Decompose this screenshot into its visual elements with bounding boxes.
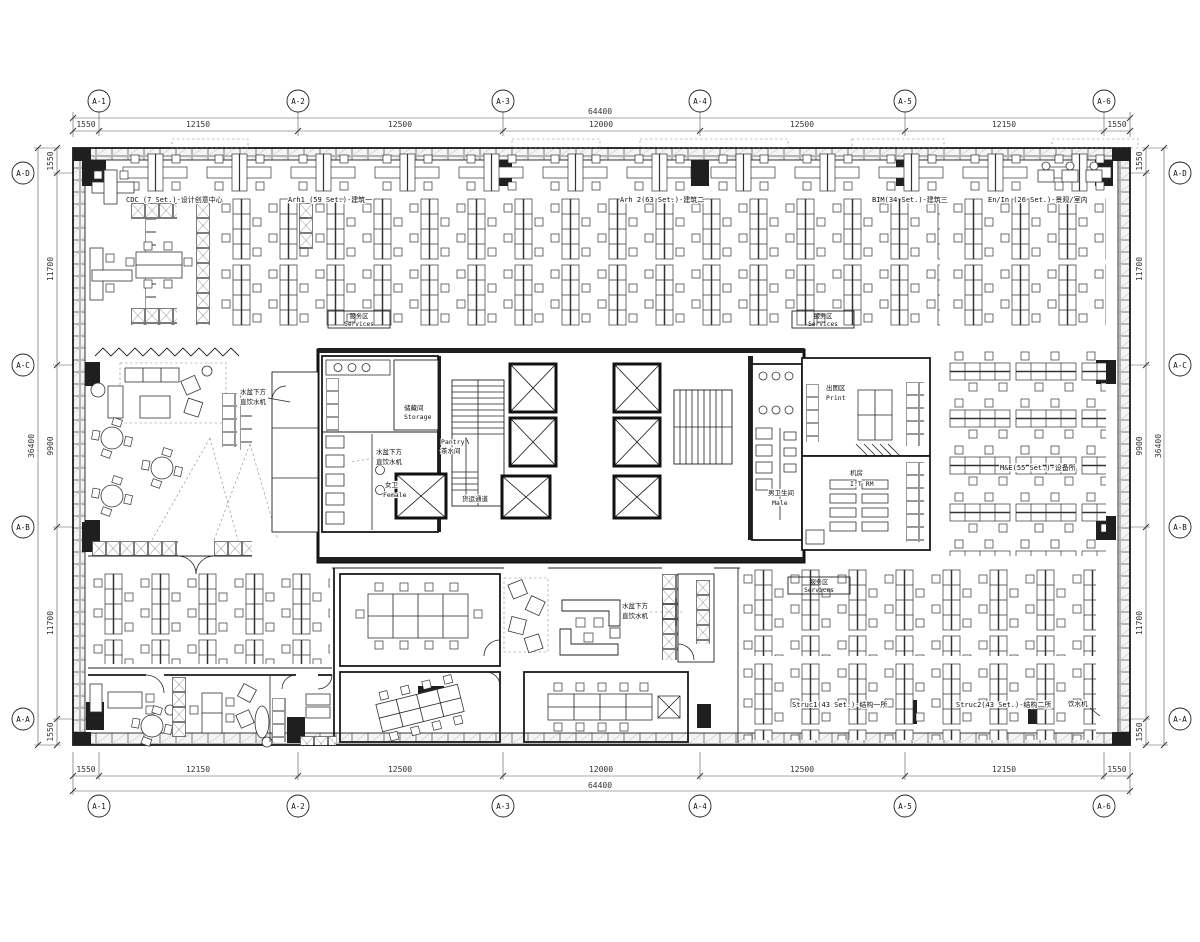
desk-field-top-band (118, 152, 1114, 194)
grid-bubble-a5: A-5 (898, 97, 912, 106)
dim-right-4: 1550 (1135, 722, 1144, 741)
dim-bot-5: 12150 (992, 765, 1016, 774)
note-water-3-l1: 水盆下方 (622, 601, 649, 610)
small-room-east (678, 574, 714, 662)
dim-top-1: 12150 (186, 120, 210, 129)
label-female-en: Female (383, 491, 407, 499)
grid-bubble-a6-b: A-6 (1097, 802, 1111, 811)
floor-plan-drawing: 64400 1550 12150 12500 12000 12500 12150… (0, 0, 1200, 942)
dim-top-5: 12150 (992, 120, 1016, 129)
grid-bubble-a3-b: A-3 (496, 802, 510, 811)
grid-bubble-a2-b: A-2 (291, 802, 305, 811)
stair-2 (674, 390, 732, 464)
grid-bubble-ad: A-D (16, 169, 30, 178)
zone-label-arh1: Arh1 (59 Set.)-建筑一 (288, 195, 372, 204)
services-3-en: Services (804, 587, 834, 594)
label-print-cn: 出图区 (826, 383, 846, 392)
label-female-cn: 女卫 (385, 480, 399, 489)
dim-top-6: 1550 (1107, 120, 1126, 129)
dim-right-1: 11700 (1135, 257, 1144, 281)
zone-label-enin: En/In (26 Set.)-景观/室内 (988, 195, 1088, 204)
zone-label-cdc: CDC (7 Set.)-设计创意中心 (126, 195, 223, 204)
grid-bubble-a4-b: A-4 (693, 802, 707, 811)
services-1-cn: 服务区 (350, 313, 369, 321)
enin-corner-seating (1038, 162, 1102, 182)
label-freight: 货运通道 (462, 494, 489, 503)
grid-bubble-ad-r: A-D (1173, 169, 1187, 178)
it-room (802, 444, 930, 550)
desk-field-arh (218, 197, 940, 329)
bottom-dimension-strip: 1550 12150 12500 12000 12500 12150 1550 … (70, 752, 1133, 817)
dim-right-0: 1550 (1135, 151, 1144, 170)
grid-bubble-a2: A-2 (291, 97, 305, 106)
meeting-room-a (340, 574, 500, 666)
services-3-cn: 服务区 (810, 579, 829, 587)
meeting-room-b (340, 672, 500, 742)
dim-bot-6: 1550 (1107, 765, 1126, 774)
dim-top-0: 1550 (76, 120, 95, 129)
dim-left-4: 1550 (46, 722, 55, 741)
dim-top-3: 12000 (589, 120, 613, 129)
grid-bubble-a6: A-6 (1097, 97, 1111, 106)
grid-bubble-a5-b: A-5 (898, 802, 912, 811)
label-it-cn: 机房 (850, 468, 863, 477)
dim-row-total-left: 36400 (27, 434, 36, 458)
grid-bubbles-bottom: A-1 A-2 A-3 A-4 A-5 A-6 (88, 795, 1115, 817)
dim-right-3: 11700 (1135, 611, 1144, 635)
dim-right-2: 9900 (1135, 436, 1144, 455)
desk-field-struc-upper (740, 568, 1096, 656)
dim-bot-2: 12500 (388, 765, 412, 774)
zone-label-me: M&E(55 Set.)-设备所 (1000, 463, 1076, 472)
grid-bubble-aa-r: A-A (1173, 715, 1187, 724)
grid-bubble-ac-r: A-C (1173, 361, 1187, 370)
central-core (272, 348, 930, 562)
services-1-en: Services (344, 321, 374, 328)
dim-left-0: 1550 (46, 151, 55, 170)
services-2-cn: 服务区 (814, 313, 833, 321)
dim-col-total-bottom: 64400 (588, 781, 612, 790)
floor-plan-page: 64400 1550 12150 12500 12000 12500 12150… (0, 0, 1200, 942)
reception-counters (560, 600, 620, 655)
label-print-en: Print (826, 394, 846, 402)
dim-bot-3: 12000 (589, 765, 613, 774)
grid-bubble-ab: A-B (16, 523, 30, 532)
meeting-room-c (524, 672, 688, 742)
label-male-en: Male (772, 499, 788, 507)
grid-bubble-a4: A-4 (693, 97, 707, 106)
label-storage-cn: 储藏间 (404, 403, 424, 412)
canopy-dashed (172, 139, 1138, 148)
note-water-2-l2: 直饮水机 (376, 457, 403, 466)
note-water-2-l1: 水盆下方 (376, 447, 403, 456)
zone-label-struc2: Struc2(43 Set.)-结构二所 (956, 700, 1051, 709)
note-water-dispenser: 饮水机 (1068, 699, 1088, 708)
label-pantry-cn: 茶水间 (441, 446, 461, 455)
dim-col-total-top: 64400 (588, 107, 612, 116)
dim-top-2: 12500 (388, 120, 412, 129)
dim-left-3: 11700 (46, 611, 55, 635)
dim-bot-0: 1550 (76, 765, 95, 774)
top-dimension-strip: 64400 1550 12150 12500 12000 12500 12150… (70, 90, 1133, 137)
dim-bot-4: 12500 (790, 765, 814, 774)
informal-seating (504, 578, 548, 653)
desk-field-me (948, 348, 1106, 556)
label-it-en: I.T RM (850, 480, 874, 488)
grid-bubble-ac: A-C (16, 361, 30, 370)
grid-bubble-a1: A-1 (92, 97, 106, 106)
zone-label-struc1: Struc1(43 Set.)-结构一所 (792, 700, 887, 709)
grid-bubble-ab-r: A-B (1173, 523, 1187, 532)
print-room (802, 358, 930, 456)
dim-left-1: 11700 (46, 257, 55, 281)
bottom-center-rooms (332, 568, 740, 743)
male-wc (752, 364, 802, 540)
grid-bubble-a1-b: A-1 (92, 802, 106, 811)
dim-left-2: 9900 (46, 436, 55, 455)
zone-label-bim3: BIM(34 Set.)-建筑三 (872, 195, 948, 204)
note-water-1-l2: 直饮水机 (240, 397, 267, 406)
note-water-1-l1: 水盆下方 (240, 387, 267, 396)
label-male-cn: 男卫生间 (768, 488, 794, 497)
label-storage-en: Storage (404, 413, 431, 421)
label-pantry-en: Pantry (441, 438, 465, 446)
zone-label-arh2: Arh 2(63 Set.)-建筑二 (620, 195, 704, 204)
note-water-3-l2: 直饮水机 (622, 611, 649, 620)
dim-top-4: 12500 (790, 120, 814, 129)
desk-field-enin (950, 197, 1106, 329)
grid-bubble-a3: A-3 (496, 97, 510, 106)
lounge-zone (88, 348, 278, 574)
dim-row-total-right: 36400 (1154, 434, 1163, 458)
desk-field-bottom-left (90, 572, 330, 664)
grid-bubble-aa: A-A (16, 715, 30, 724)
dim-bot-1: 12150 (186, 765, 210, 774)
grid-bubbles-right: A-D A-C A-B A-A (1169, 162, 1191, 730)
services-2-en: Services (808, 321, 838, 328)
